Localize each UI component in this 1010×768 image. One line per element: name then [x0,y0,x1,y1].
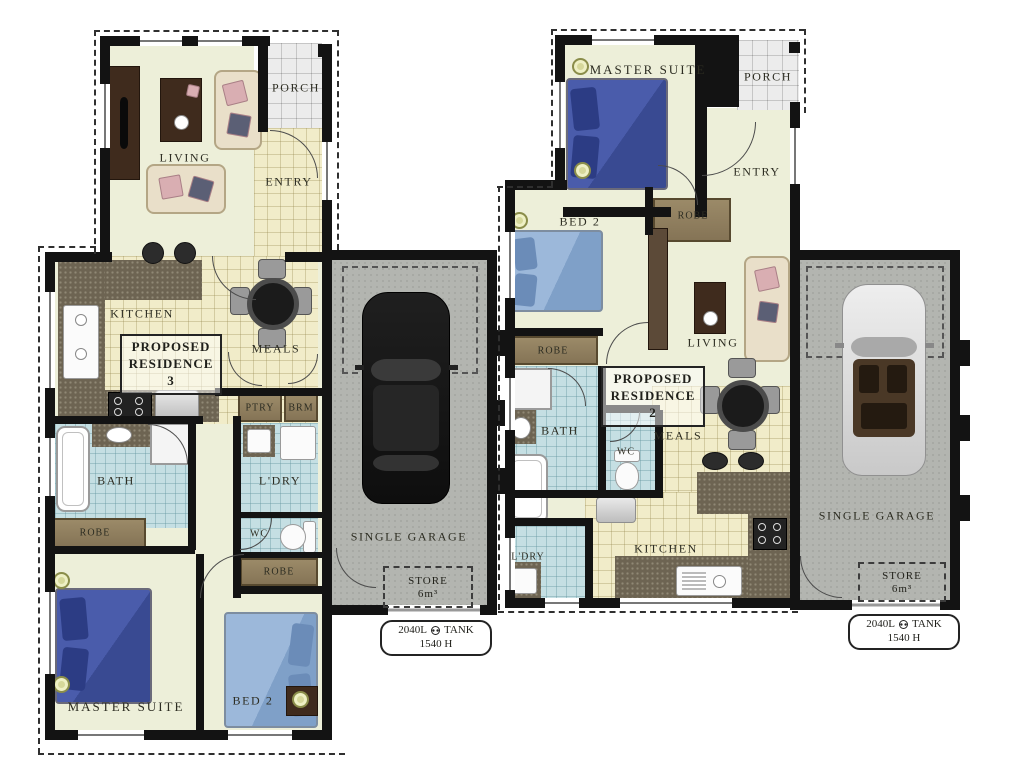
res3-cabinet [160,78,202,142]
car-mirror [449,365,458,370]
res2-dining-table [717,380,769,432]
drainer-icon [682,572,706,590]
car-seat [887,365,907,393]
floorplan: LIVING PORCH ENTRY KITCHEN MEALS PTRY BR… [0,0,1010,768]
window [198,36,242,46]
res3-bath-label: BATH [97,474,135,489]
boundary-line [498,611,798,613]
window [505,538,515,590]
speaker-icon [174,115,189,130]
burner-icon [773,536,781,544]
wall [45,252,112,262]
boundary-line [38,246,40,754]
window [790,128,800,184]
burner-icon [135,408,143,416]
window [78,730,144,740]
burner-icon [114,397,122,405]
wall [241,552,322,558]
res2-kitchen-island [697,472,790,514]
boundary-line [337,30,339,250]
cushion [757,301,780,324]
res3-robe-bed2-label: ROBE [264,567,295,578]
res2-cooktop [753,518,787,550]
res3-washer [280,426,316,460]
res2-laundry-appliance [596,497,636,523]
wall [55,416,203,424]
car-windshield [371,359,441,381]
tank-icon [431,626,440,635]
burner-icon [758,523,766,531]
wall [233,586,322,594]
res3-entry-label: ENTRY [265,175,312,190]
window [592,35,654,45]
downlight-icon [572,58,589,75]
wall [188,420,196,550]
burner-icon [758,536,766,544]
res2-tank-word: TANK [912,618,942,632]
window [620,598,732,608]
res3-kitchen-counter-top [105,260,202,300]
res2-tank-badge: 2040L TANK 1540 H [848,614,960,650]
wall [45,546,195,554]
res3-robe-bath-label: ROBE [80,528,111,539]
wall [505,328,603,336]
res3-ldry-sink [247,429,271,453]
boundary-line [804,29,806,113]
tv-screen-icon [120,97,128,149]
vanity-basin-icon [106,427,132,443]
window [45,592,55,674]
dining-chair [728,430,756,450]
boundary-line [551,29,553,187]
pillow [512,237,538,271]
window [505,232,515,298]
downlight-icon [53,676,70,693]
window [140,36,182,46]
res3-tank-height: 1540 H [382,638,490,652]
wall [332,250,497,260]
res2-robe-entry-label: ROBE [678,211,709,222]
res2-title-line1: PROPOSED [608,371,698,388]
res3-title-box: PROPOSED RESIDENCE 3 [120,334,222,395]
boundary-line [94,30,96,254]
window [545,598,579,608]
res3-broom-label: BRM [288,403,313,414]
pillow [288,623,315,667]
res2-living-label: LIVING [688,336,739,351]
res3-garage-label: SINGLE GARAGE [351,530,467,545]
res3-tank-capacity: 2040L [398,624,427,638]
sink-bowl-icon [75,348,87,360]
burner-icon [114,408,122,416]
boundary-line [38,753,345,755]
window [228,730,292,740]
res2-bed2-label: BED 2 [560,215,601,230]
wall [285,252,332,262]
bathtub-inner [512,460,542,518]
res3-ldry-label: L'DRY [259,474,301,489]
res2-meals-label: MEALS [654,429,703,444]
res3-kitchen-label: KITCHEN [110,307,174,322]
res3-kitchen-sink [63,305,99,379]
res3-tank-word: TANK [444,624,474,638]
res2-store-box: STORE 6m³ [858,562,946,602]
garage-pier [960,495,970,521]
res3-bed2-label: BED 2 [233,694,274,709]
res3-sofa-2 [146,164,226,214]
res3-store-box: STORE 6m³ [383,566,473,608]
res2-entry-label: ENTRY [733,165,780,180]
res2-title-line2: RESIDENCE 2 [608,388,698,422]
cushion [186,84,200,98]
wall [100,36,270,46]
wall [508,518,593,526]
res3-stool [142,242,164,264]
sink-bowl-icon [713,575,726,588]
car-mirror [355,365,364,370]
porch-pier [789,42,800,53]
wall [505,490,660,498]
wall [790,250,960,260]
burner-icon [135,397,143,405]
wall [258,36,268,132]
window [505,378,515,430]
res2-stool [702,452,728,470]
garage-pier [960,340,970,366]
res2-porch-label: PORCH [744,70,792,85]
cushion [187,175,214,202]
res3-master-label: MASTER SUITE [68,699,185,715]
cushion [226,112,251,137]
res3-porch-label: PORCH [272,81,320,96]
res3-meals-label: MEALS [252,342,301,357]
res2-sofa [744,256,790,362]
wall [100,36,110,262]
res2-kitchen-sink [676,566,742,596]
res3-tank-badge: 2040L TANK 1540 H [380,620,492,656]
res3-wc-label: WC [250,529,268,540]
dining-chair [258,259,286,279]
car-interior [853,359,915,437]
car-mirror [925,343,934,348]
cushion [158,174,183,199]
car-roof [373,385,439,451]
res3-bathtub [56,426,90,512]
cushion [754,266,780,292]
boundary-line [94,30,338,32]
wall [215,388,322,396]
res3-store-label: STORE [385,575,471,587]
speaker-icon [703,311,718,326]
window [555,82,565,148]
res2-tv-unit [694,282,726,334]
res3-stool [174,242,196,264]
downlight-icon [574,162,591,179]
res3-title-line2: RESIDENCE 3 [127,356,215,390]
boundary-line [38,246,96,248]
wall [487,250,497,615]
res2-toilet-bowl [615,462,639,490]
res2-ldry-label: L'DRY [511,552,544,563]
window [45,438,55,496]
car-mirror [835,343,844,348]
pillow [512,273,537,307]
res2-kitchen-label: KITCHEN [634,542,698,557]
burner-icon [773,523,781,531]
res2-bed2-bed [508,230,603,312]
pillow [59,597,89,641]
window [45,292,55,388]
wall [950,250,960,610]
wall [585,524,593,606]
res2-store-label: STORE [860,570,944,582]
boundary-line [498,186,500,610]
wall [705,35,739,107]
wall [645,187,653,235]
res3-pantry-label: PTRY [245,403,274,414]
window [100,84,110,148]
res2-master-label: MASTER SUITE [590,62,707,78]
res3-store-volume: 6m³ [385,588,471,600]
res2-tank-capacity: 2040L [866,618,895,632]
boundary-line [497,186,553,188]
window [322,142,332,200]
res2-ldry-sink [513,568,537,594]
car-windshield [851,337,917,357]
car-rear-window [373,455,439,471]
downlight-icon [53,572,70,589]
sink-bowl-icon [75,314,87,326]
res2-title-box: PROPOSED RESIDENCE 2 [601,366,705,427]
car-seat [861,403,907,429]
res3-living-label: LIVING [160,151,211,166]
car-seat [859,365,879,393]
boundary-line [551,29,805,31]
res3-title-line1: PROPOSED [127,339,215,356]
dining-chair [728,358,756,378]
garage-pier [960,415,970,441]
res2-robe-bed2-label: ROBE [538,346,569,357]
res3-car [362,292,450,504]
tank-icon [899,620,908,629]
res2-wc-label: WC [617,447,635,458]
res2-stool [738,452,764,470]
res3-tv-unit [106,66,140,180]
res2-hall-cabinet [648,228,668,350]
bathtub-inner [62,432,84,506]
res2-car [842,284,926,476]
res3-sofa-1 [214,70,262,150]
cushion [222,80,249,107]
res3-toilet-bowl [280,524,306,550]
res2-bath-label: BATH [541,424,579,439]
res2-tank-height: 1540 H [850,632,958,646]
res2-store-volume: 6m³ [860,583,944,595]
downlight-icon [292,691,309,708]
pillow [570,87,600,131]
res2-garage-label: SINGLE GARAGE [819,509,935,524]
